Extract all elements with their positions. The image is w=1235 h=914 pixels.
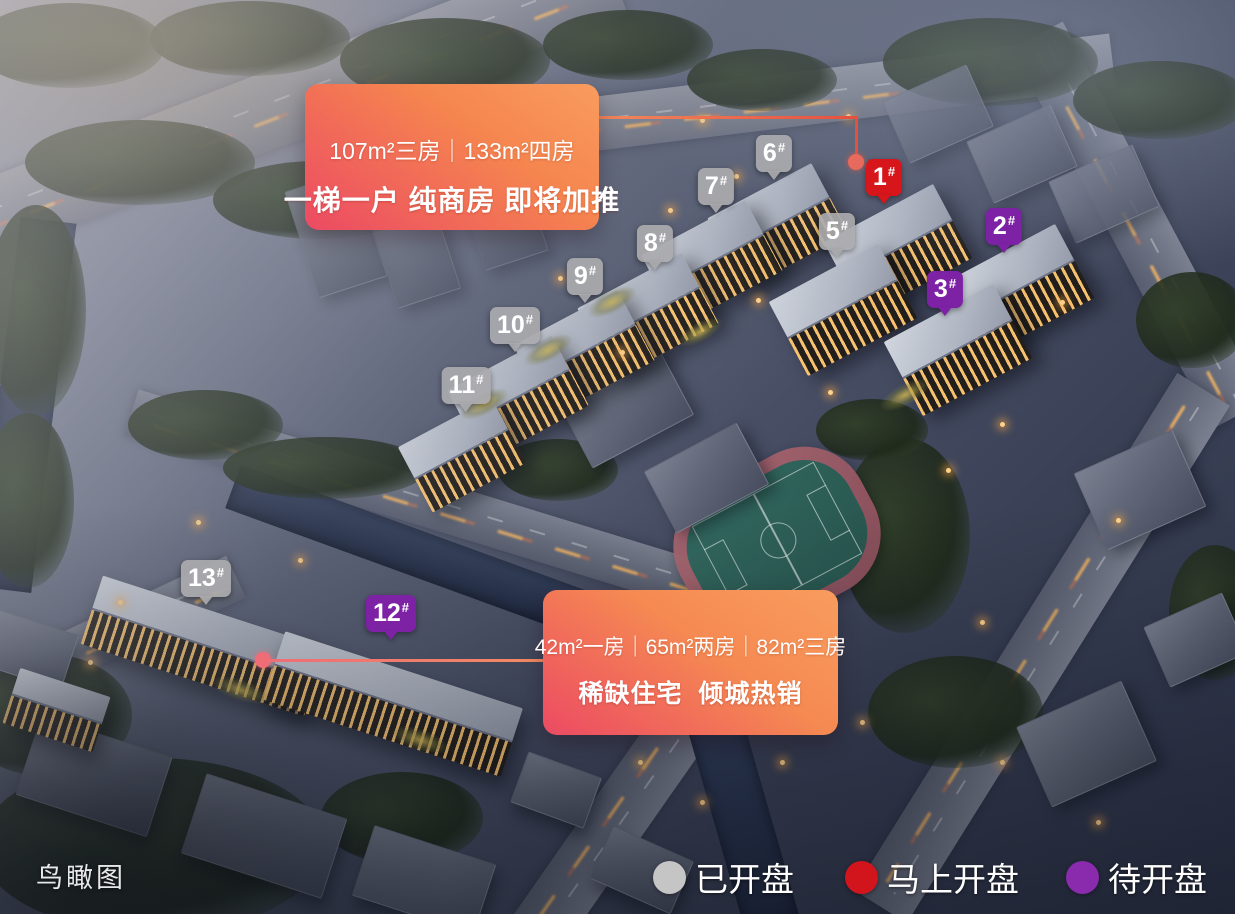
lamp-shape: [1000, 422, 1005, 427]
marker-label: 1#: [866, 159, 902, 196]
marker-label: 7#: [698, 168, 734, 205]
lamp-shape: [620, 350, 625, 355]
lamp-shape: [980, 620, 985, 625]
lamp-shape: [298, 558, 303, 563]
lamp-shape: [860, 720, 865, 725]
lamp-shape: [196, 520, 201, 525]
callout-commercial-slogan: 一梯一户 纯商房 即将加推: [284, 179, 621, 219]
callout-residential-slogan: 稀缺住宅 倾城热销: [579, 674, 803, 710]
marker-label: 11#: [442, 367, 491, 404]
grove-shape: [223, 437, 428, 499]
marker-label: 8#: [637, 225, 673, 262]
marker-tail-icon: [578, 294, 592, 303]
marker-tail-icon: [199, 596, 213, 605]
marker-label: 5#: [819, 213, 855, 250]
marker-tail-icon: [648, 261, 662, 270]
lamp-shape: [1000, 760, 1005, 765]
marker-tail-icon: [767, 171, 781, 180]
lamp-shape: [1116, 518, 1121, 523]
marker-tail-icon: [938, 307, 952, 316]
marker-tail-icon: [459, 403, 473, 412]
marker-building-13: 13#: [181, 560, 231, 605]
callout-bottom-connector-line: [263, 659, 543, 662]
lamp-shape: [756, 298, 761, 303]
marker-label: 12#: [366, 595, 416, 632]
marker-tail-icon: [830, 249, 844, 258]
grove-shape: [687, 49, 837, 111]
map-title: 鸟瞰图: [36, 856, 126, 895]
marker-building-7: 7#: [698, 168, 734, 213]
callout-top-connector-line: [597, 116, 858, 119]
marker-tail-icon: [709, 204, 723, 213]
callout-commercial-specs: 107m²三房｜133m²四房: [329, 132, 574, 166]
lamp-shape: [118, 600, 123, 605]
marker-label: 3#: [927, 271, 963, 308]
grove-shape: [0, 413, 74, 588]
callout-top-connector-line: [855, 116, 858, 158]
marker-tail-icon: [384, 631, 398, 640]
lamp-shape: [828, 390, 833, 395]
grove-shape: [543, 10, 713, 80]
marker-tail-icon: [877, 195, 891, 204]
marker-label: 13#: [181, 560, 231, 597]
marker-building-6: 6#: [756, 135, 792, 180]
marker-building-10: 10#: [490, 307, 540, 352]
marker-label: 6#: [756, 135, 792, 172]
callout-bottom-connector-dot-icon: [255, 652, 271, 668]
lamp-shape: [1060, 300, 1065, 305]
grove-shape: [0, 3, 165, 88]
marker-tail-icon: [997, 244, 1011, 253]
callout-residential-info: 42m²一房｜65m²两房｜82m²三房 稀缺住宅 倾城热销: [543, 590, 838, 735]
lamp-shape: [668, 208, 673, 213]
lamp-shape: [946, 468, 951, 473]
marker-building-1: 1#: [866, 159, 902, 204]
marker-label: 9#: [567, 258, 603, 295]
marker-building-3: 3#: [927, 271, 963, 316]
callout-top-connector-dot-icon: [848, 154, 864, 170]
marker-tail-icon: [508, 343, 522, 352]
marker-label: 2#: [986, 208, 1022, 245]
grove-shape: [1136, 272, 1235, 368]
grove-shape: [1073, 61, 1235, 139]
marker-building-12: 12#: [366, 595, 416, 640]
callout-commercial-info: 107m²三房｜133m²四房 一梯一户 纯商房 即将加推: [305, 84, 599, 230]
marker-label: 10#: [490, 307, 540, 344]
lamp-shape: [88, 660, 93, 665]
lamp-shape: [558, 276, 563, 281]
lamp-shape: [700, 800, 705, 805]
marker-building-9: 9#: [567, 258, 603, 303]
marker-building-11: 11#: [442, 367, 491, 412]
tower-shape: [263, 631, 523, 777]
grove-shape: [150, 1, 350, 76]
marker-building-8: 8#: [637, 225, 673, 270]
lamp-shape: [780, 760, 785, 765]
callout-residential-specs: 42m²一房｜65m²两房｜82m²三房: [535, 631, 847, 661]
grove-shape: [868, 656, 1043, 768]
marker-building-2: 2#: [986, 208, 1022, 253]
lamp-shape: [1096, 820, 1101, 825]
aerial-overview: 1#2#3#5#6#7#8#9#10#11#12#13# 107m²三房｜133…: [0, 0, 1235, 914]
lamp-shape: [734, 174, 739, 179]
marker-building-5: 5#: [819, 213, 855, 258]
lamp-shape: [638, 760, 643, 765]
scene-render: [0, 0, 1235, 914]
